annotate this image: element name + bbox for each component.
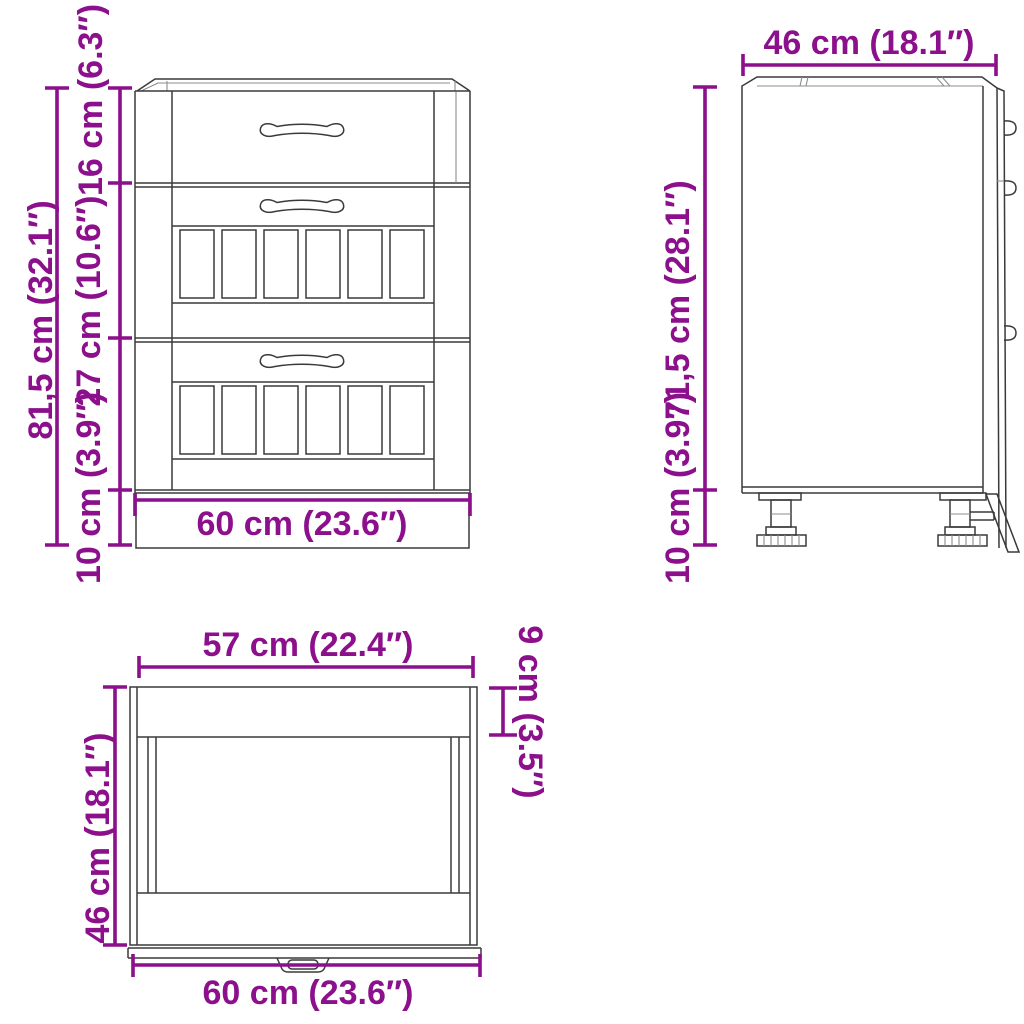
middle-drawer-front — [172, 226, 434, 303]
side-leg-height-label: 10 cm (3.9″) — [659, 392, 697, 584]
side-carcass-height-label: 71,5 cm (28.1″) — [659, 180, 697, 419]
plinth-board-diagonal — [986, 494, 1019, 552]
top-rail-depth-label: 9 cm (3.5″) — [511, 625, 549, 798]
side-depth-label: 46 cm (18.1″) — [764, 24, 975, 62]
top-view-drawing — [128, 687, 481, 972]
back-panel — [997, 88, 1006, 548]
front-drawer-height-label: 27 cm (10.6″) — [70, 196, 108, 407]
side-view-drawing — [742, 77, 1019, 552]
front-total-height-label: 81,5 cm (32.1″) — [22, 200, 60, 439]
top-width-label: 60 cm (23.6″) — [203, 974, 414, 1012]
drawer-handle — [260, 124, 343, 137]
front-plinth-height-label: 10 cm (3.9″) — [70, 392, 108, 584]
front-edge-lip — [128, 948, 481, 958]
dimension-diagram-page: 81,5 cm (32.1″) 16 cm (6.3″) 27 cm (10.6… — [0, 0, 1024, 1024]
top-dimensions: 57 cm (22.4″) 9 cm (3.5″) 46 cm (18.1″) … — [79, 625, 549, 1011]
back-panel-clip — [1004, 181, 1016, 195]
front-view-drawing — [135, 79, 470, 548]
dimension-diagram: 81,5 cm (32.1″) 16 cm (6.3″) 27 cm (10.6… — [0, 0, 1024, 1024]
top-depth-label: 46 cm (18.1″) — [79, 733, 117, 944]
adjustable-foot-rear — [938, 493, 994, 546]
top-inner-width-label: 57 cm (22.4″) — [203, 626, 414, 664]
front-sections-line — [108, 88, 132, 545]
bottom-drawer-front — [172, 382, 434, 459]
front-top-drawer-height-label: 16 cm (6.3″) — [72, 4, 110, 196]
back-panel-clip — [1004, 121, 1016, 135]
drawer-handle — [260, 355, 343, 368]
drawer-handle — [260, 200, 343, 213]
front-width-label: 60 cm (23.6″) — [197, 505, 408, 543]
adjustable-foot-front — [757, 493, 806, 546]
